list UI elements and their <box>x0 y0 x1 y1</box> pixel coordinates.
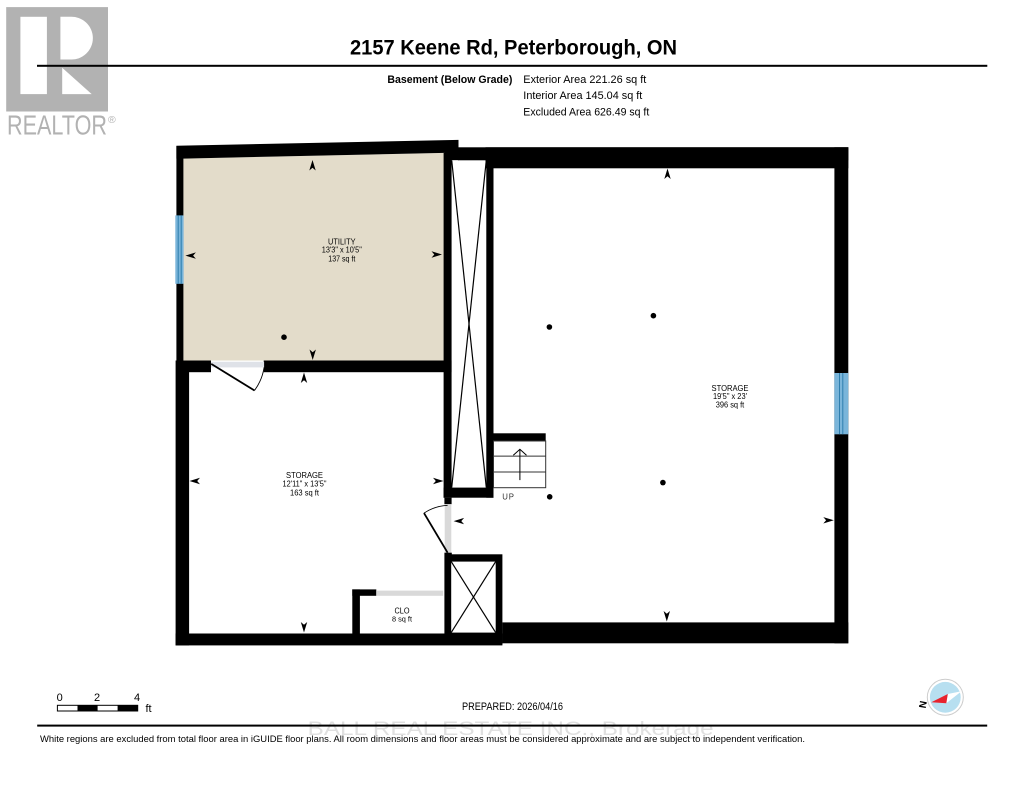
svg-text:Basement (Below Grade): Basement (Below Grade) <box>387 74 512 86</box>
svg-text:®: ® <box>108 114 116 126</box>
svg-text:UP: UP <box>502 493 514 502</box>
svg-text:White regions are excluded fro: White regions are excluded from total fl… <box>40 734 805 744</box>
svg-text:137 sq ft: 137 sq ft <box>328 254 356 263</box>
svg-text:4: 4 <box>134 692 140 704</box>
svg-text:396 sq ft: 396 sq ft <box>716 400 745 409</box>
svg-text:Interior Area 145.04 sq ft: Interior Area 145.04 sq ft <box>523 90 643 102</box>
svg-text:PREPARED: 2026/04/16: PREPARED: 2026/04/16 <box>462 701 563 713</box>
svg-text:8 sq ft: 8 sq ft <box>392 615 413 624</box>
svg-text:Excluded Area 626.49 sq ft: Excluded Area 626.49 sq ft <box>523 107 650 119</box>
svg-text:Exterior Area 221.26 sq ft: Exterior Area 221.26 sq ft <box>523 74 647 86</box>
svg-text:163 sq ft: 163 sq ft <box>290 488 320 497</box>
svg-text:2157 Keene Rd, Peterborough, O: 2157 Keene Rd, Peterborough, ON <box>350 37 677 60</box>
svg-text:12'11" x 13'5": 12'11" x 13'5" <box>283 480 327 489</box>
svg-text:0: 0 <box>57 692 63 704</box>
svg-text:2: 2 <box>94 692 100 704</box>
svg-text:ft: ft <box>146 703 152 715</box>
svg-text:STORAGE: STORAGE <box>286 470 323 480</box>
svg-text:N: N <box>916 700 928 709</box>
svg-text:REALTOR: REALTOR <box>7 110 107 141</box>
